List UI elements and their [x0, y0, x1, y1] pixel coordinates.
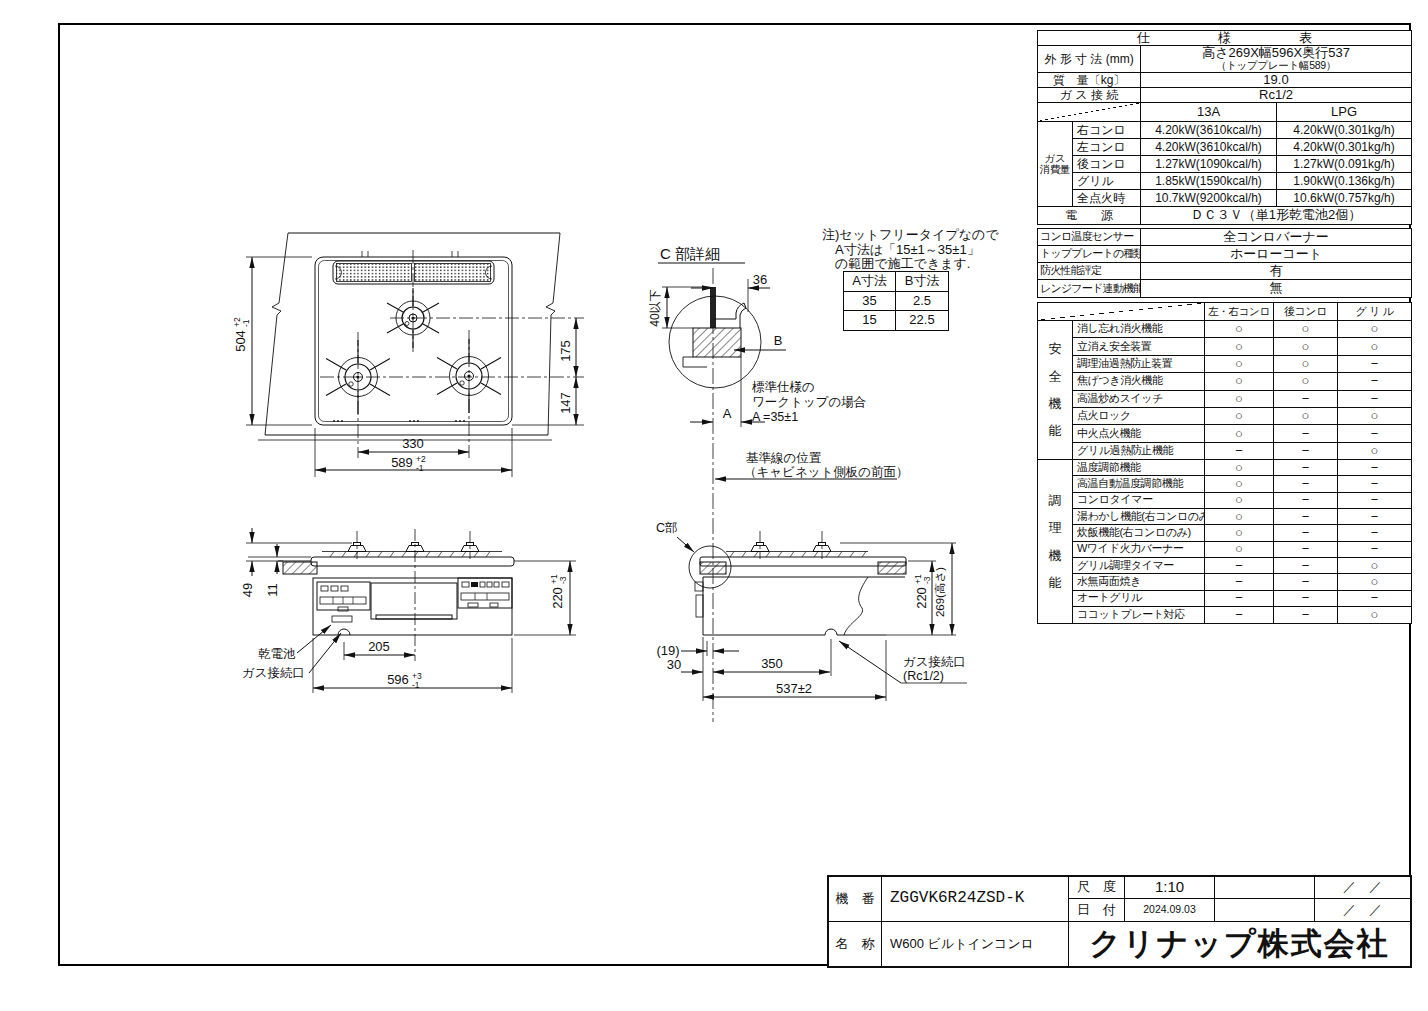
dim-220-front: 220 +1 -3 — [549, 574, 568, 609]
std-worktop-note-3: A =35±1 — [752, 410, 798, 424]
matrix-row-label: 高温自動温度調節機能 — [1073, 476, 1205, 492]
dim-504-tol-minus: -1 — [241, 319, 251, 327]
dim-11-label: 11 — [265, 583, 280, 597]
matrix-mark: − — [1205, 574, 1274, 590]
dim-537-label: 537±2 — [776, 681, 812, 696]
matrix-row-label: 調理油過熱防止装置 — [1073, 356, 1205, 373]
gas-port-label: ガス接続口 — [242, 666, 305, 680]
gas-row-lpg: 1.90kW(0.136kg/h) — [1277, 173, 1411, 190]
dim-596-label: 596 — [387, 672, 409, 687]
matrix-row-label: オートグリル — [1073, 591, 1205, 607]
dim-b-label: B — [774, 333, 783, 348]
matrix-mark: ○ — [1205, 356, 1274, 373]
matrix-mark: − — [1274, 493, 1338, 509]
note-line-3: の範囲で施工できます. — [835, 257, 999, 272]
matrix-mark: ○ — [1205, 525, 1274, 541]
install-note: 注)セットフリータイプなので A寸法は「15±1～35±1」 の範囲で施工できま… — [822, 228, 999, 272]
matrix-mark: − — [1338, 493, 1411, 509]
matrix-row-label: 焦げつき消火機能 — [1073, 373, 1205, 390]
matrix-mark: ○ — [1205, 408, 1274, 425]
spec-table-info: コンロ温度センサー 全コンロバーナー トッププレートの種類 ホーローコート 防火… — [1037, 228, 1412, 298]
gas-row-label: 左コンロ — [1073, 139, 1141, 156]
matrix-mark: ○ — [1338, 558, 1411, 574]
gas-group-label: ガス 消費量 — [1038, 122, 1073, 207]
matrix-row-label: ココットプレート対応 — [1073, 607, 1205, 623]
dim-147-label: 147 — [558, 392, 573, 414]
spec-title: 仕 様 表 — [1038, 31, 1411, 46]
matrix-mark: − — [1274, 443, 1338, 460]
matrix-mark: ○ — [1338, 607, 1411, 623]
matrix-mark: ○ — [1205, 493, 1274, 509]
matrix-mark: ○ — [1338, 321, 1411, 338]
spec-value-gas: Rc1/2 — [1141, 88, 1411, 103]
approval-cell — [1215, 899, 1315, 922]
battery-lid — [332, 616, 352, 622]
matrix-mark: − — [1205, 607, 1274, 623]
date-value: 2024.09.03 — [1125, 899, 1215, 922]
spec-table-matrix: 左・右コンロ 後コンロ グ リ ル 安 全 機 能 消し忘れ消火機能 ○ ○ ○… — [1037, 302, 1412, 624]
product-name-label: 名 称 — [829, 922, 882, 966]
body-break-line — [844, 577, 868, 635]
matrix-mark: ○ — [1205, 476, 1274, 492]
approval-slash: ／ ／ — [1315, 877, 1410, 899]
dim-19-label: (19) — [656, 643, 679, 658]
dim-269-label: 269(高さ) — [934, 567, 946, 617]
note-line-1: 注)セットフリータイプなので — [822, 228, 999, 243]
c-part-label: C部 — [656, 521, 678, 535]
matrix-col-head: 左・右コンロ — [1205, 303, 1274, 321]
matrix-mark: ○ — [1205, 425, 1274, 442]
dim-49-label: 49 — [240, 583, 255, 597]
matrix-mark: ○ — [1274, 321, 1338, 338]
approval-slash: ／ ／ — [1315, 899, 1410, 922]
gas-port-rc-label-1: ガス接続口 — [903, 655, 966, 669]
spec-label-power: 電 源 — [1038, 207, 1141, 224]
matrix-mark: − — [1274, 591, 1338, 607]
spec-value-dims: 高さ269X幅596X奥行537 （トッププレート幅589） — [1141, 46, 1411, 73]
gas-col-13a: 13A — [1141, 103, 1277, 122]
matrix-mark: − — [1338, 460, 1411, 476]
gas-row-13a: 4.20kW(3610kcal/h) — [1141, 122, 1277, 139]
date-label: 日 付 — [1069, 899, 1125, 922]
model-number-value: ZGGVK6R24ZSD-K — [882, 877, 1069, 922]
gas-row-label: 後コンロ — [1073, 156, 1141, 173]
matrix-mark: ○ — [1274, 356, 1338, 373]
matrix-row-label: グリル調理タイマー — [1073, 558, 1205, 574]
matrix-row-label: 立消え安全装置 — [1073, 338, 1205, 355]
matrix-row-label: コンロタイマー — [1073, 493, 1205, 509]
matrix-mark: − — [1274, 425, 1338, 442]
matrix-mark: − — [1274, 476, 1338, 492]
matrix-mark: ○ — [1205, 460, 1274, 476]
spec-value-mass: 19.0 — [1141, 73, 1411, 88]
matrix-mark: ○ — [1274, 373, 1338, 390]
matrix-row-label: Wワイド火力バーナー — [1073, 542, 1205, 558]
approval-cell — [1215, 877, 1315, 899]
matrix-mark: − — [1205, 591, 1274, 607]
matrix-mark: ○ — [1274, 338, 1338, 355]
matrix-mark: ○ — [1205, 391, 1274, 408]
dim-220f-tol-minus: -3 — [558, 576, 568, 584]
spec-label-gas: ガ ス 接 続 — [1038, 88, 1141, 103]
gas-port-rc-label-2: (Rc1/2) — [903, 669, 944, 683]
matrix-mark: ○ — [1338, 408, 1411, 425]
worktop-section — [283, 562, 317, 574]
ab-head-a: A寸法 — [844, 272, 896, 292]
grill-door — [371, 583, 457, 619]
dim-350-label: 350 — [761, 656, 783, 671]
reference-line-note-1: 基準線の位置 — [746, 451, 822, 465]
matrix-row-label: 湯わかし機能(右コンロのみ) — [1073, 509, 1205, 525]
matrix-mark: − — [1338, 525, 1411, 541]
note-line-2: A寸法は「15±1～35±1」 — [835, 243, 999, 258]
matrix-mark: − — [1274, 542, 1338, 558]
gas-row-13a: 1.27kW(1090kcal/h) — [1141, 156, 1277, 173]
cabinet-panel-section — [710, 287, 716, 328]
dims-value-line1: 高さ269X幅596X奥行537 — [1202, 46, 1350, 60]
matrix-mark: − — [1274, 525, 1338, 541]
matrix-mark: ○ — [1205, 338, 1274, 355]
matrix-mark: − — [1274, 509, 1338, 525]
cooking-group-label: 調 理 機 能 — [1038, 460, 1073, 623]
matrix-mark: − — [1338, 391, 1411, 408]
spec-label-mass: 質 量〔kg〕 — [1038, 73, 1141, 88]
company-name: クリナップ株式会社 — [1069, 922, 1410, 966]
dim-220f-label: 220 — [550, 587, 565, 609]
plate-flange — [713, 303, 746, 328]
gas-col-lpg: LPG — [1277, 103, 1411, 122]
info-label: レンジフード連動機能 — [1038, 280, 1141, 297]
model-number-label: 機 番 — [829, 877, 882, 922]
matrix-col-head: 後コンロ — [1274, 303, 1338, 321]
matrix-mark: − — [1274, 558, 1338, 574]
matrix-mark: − — [1338, 542, 1411, 558]
dim-220-side: 220 +1 -3 — [913, 574, 932, 609]
gas-row-label: グリル — [1073, 173, 1141, 190]
gas-notch-side — [825, 629, 837, 635]
dim-220s-tol-minus: -3 — [922, 576, 932, 584]
matrix-mark: ○ — [1338, 574, 1411, 590]
dims-value-line2: （トッププレート幅589） — [1216, 60, 1336, 71]
dim-504-label: 504 — [233, 330, 248, 352]
gas-row-lpg: 4.20kW(0.301kg/h) — [1277, 122, 1411, 139]
spec-table-main: 仕 様 表 外 形 寸 法 (mm) 高さ269X幅596X奥行537 （トップ… — [1037, 30, 1412, 225]
gas-row-13a: 4.20kW(3610kcal/h) — [1141, 139, 1277, 156]
dim-a-label: A — [723, 406, 732, 421]
info-label: 防火性能評定 — [1038, 263, 1141, 280]
info-label: トッププレートの種類 — [1038, 246, 1141, 263]
spec-value-power: ＤＣ３Ｖ（単1形乾電池2個） — [1141, 207, 1411, 224]
matrix-mark: − — [1338, 373, 1411, 390]
dim-36-label: 36 — [753, 272, 767, 287]
reference-line-note-2: （キャビネット側板の前面） — [744, 465, 909, 479]
matrix-mark: − — [1274, 574, 1338, 590]
gas-row-lpg: 1.27kW(0.091kg/h) — [1277, 156, 1411, 173]
grill-vent — [333, 251, 494, 284]
safety-group-label: 安 全 機 能 — [1038, 321, 1073, 460]
ab-cell: 22.5 — [896, 311, 948, 330]
scale-value: 1:10 — [1125, 877, 1215, 899]
top-plate-edge — [311, 557, 514, 566]
gas-row-lpg: 4.20kW(0.301kg/h) — [1277, 139, 1411, 156]
matrix-mark: − — [1338, 356, 1411, 373]
info-label: コンロ温度センサー — [1038, 229, 1141, 246]
gas-row-lpg: 10.6kW(0.757kg/h) — [1277, 190, 1411, 207]
dim-330-label: 330 — [402, 436, 424, 451]
matrix-mark: − — [1338, 425, 1411, 442]
std-worktop-note-2: ワークトップの場合 — [752, 395, 866, 409]
matrix-mark: − — [1274, 607, 1338, 623]
info-value: 全コンロバーナー — [1141, 229, 1411, 246]
matrix-mark: − — [1205, 443, 1274, 460]
gas-row-13a: 10.7kW(9200kcal/h) — [1141, 190, 1277, 207]
ab-cell: 35 — [844, 292, 896, 311]
matrix-row-label: 点火ロック — [1073, 408, 1205, 425]
matrix-mark: ○ — [1205, 542, 1274, 558]
std-worktop-note-1: 標準仕様の — [751, 380, 815, 394]
info-value: ホーローコート — [1141, 246, 1411, 263]
matrix-mark: − — [1274, 391, 1338, 408]
matrix-mark: ○ — [1338, 443, 1411, 460]
gas-header-diagonal — [1038, 103, 1141, 122]
matrix-row-label: 高温炒めスイッチ — [1073, 391, 1205, 408]
burner-caps — [348, 546, 479, 552]
matrix-mark: ○ — [1205, 373, 1274, 390]
matrix-row-label: 水無両面焼き — [1073, 574, 1205, 590]
worktop-section-detail — [693, 328, 741, 357]
ab-cell: 2.5 — [896, 292, 948, 311]
matrix-mark: ○ — [1205, 509, 1274, 525]
matrix-header-diagonal — [1038, 303, 1205, 321]
dim-40-label: 40以下 — [648, 289, 662, 326]
detail-c-title: C 部詳細 — [660, 245, 720, 262]
dim-220s-label: 220 — [914, 587, 929, 609]
matrix-mark: ○ — [1338, 338, 1411, 355]
cooktop-body — [313, 578, 512, 635]
matrix-row-label: 炊飯機能(右コンロのみ) — [1073, 525, 1205, 541]
spec-label-dims: 外 形 寸 法 (mm) — [1038, 46, 1141, 73]
scale-label: 尺 度 — [1069, 877, 1125, 899]
matrix-row-label: グリル過熱防止機能 — [1073, 443, 1205, 460]
matrix-row-label: 消し忘れ消火機能 — [1073, 321, 1205, 338]
drawing-sheet: 504 +2 -1 589 +2 -1 330 175 147 — [0, 0, 1428, 1011]
dim-589-tol-minus: -1 — [416, 463, 424, 473]
dim-504: 504 +2 -1 — [232, 317, 251, 352]
matrix-row-label: 温度調節機能 — [1073, 460, 1205, 476]
matrix-mark: − — [1338, 476, 1411, 492]
matrix-col-head: グ リ ル — [1338, 303, 1411, 321]
gas-row-label: 全点火時 — [1073, 190, 1141, 207]
matrix-row-label: 中火点火機能 — [1073, 425, 1205, 442]
matrix-mark: ○ — [1205, 321, 1274, 338]
dim-205-label: 205 — [368, 639, 390, 654]
dim-596-tol-minus: -1 — [412, 680, 420, 690]
matrix-mark: ○ — [1274, 408, 1338, 425]
dim-30-label: 30 — [667, 657, 681, 672]
ab-head-b: B寸法 — [896, 272, 948, 292]
gas-row-label: 右コンロ — [1073, 122, 1141, 139]
ab-dimension-table: A寸法 B寸法 35 2.5 15 22.5 — [843, 271, 949, 331]
matrix-mark: − — [1338, 509, 1411, 525]
battery-label: 乾電池 — [258, 647, 296, 661]
matrix-mark: − — [1205, 558, 1274, 574]
product-name-value: W600 ビルトインコンロ — [882, 922, 1069, 966]
matrix-mark: − — [1338, 591, 1411, 607]
gas-row-13a: 1.85kW(1590kcal/h) — [1141, 173, 1277, 190]
dim-175-label: 175 — [558, 340, 573, 362]
info-value: 無 — [1141, 280, 1411, 297]
title-block: 機 番 ZGGVK6R24ZSD-K 尺 度 1:10 ／ ／ 日 付 2024… — [827, 875, 1412, 968]
info-value: 有 — [1141, 263, 1411, 280]
grill-handle — [376, 615, 452, 619]
ab-cell: 15 — [844, 311, 896, 330]
dim-589-label: 589 — [391, 455, 413, 470]
matrix-mark: − — [1274, 460, 1338, 476]
